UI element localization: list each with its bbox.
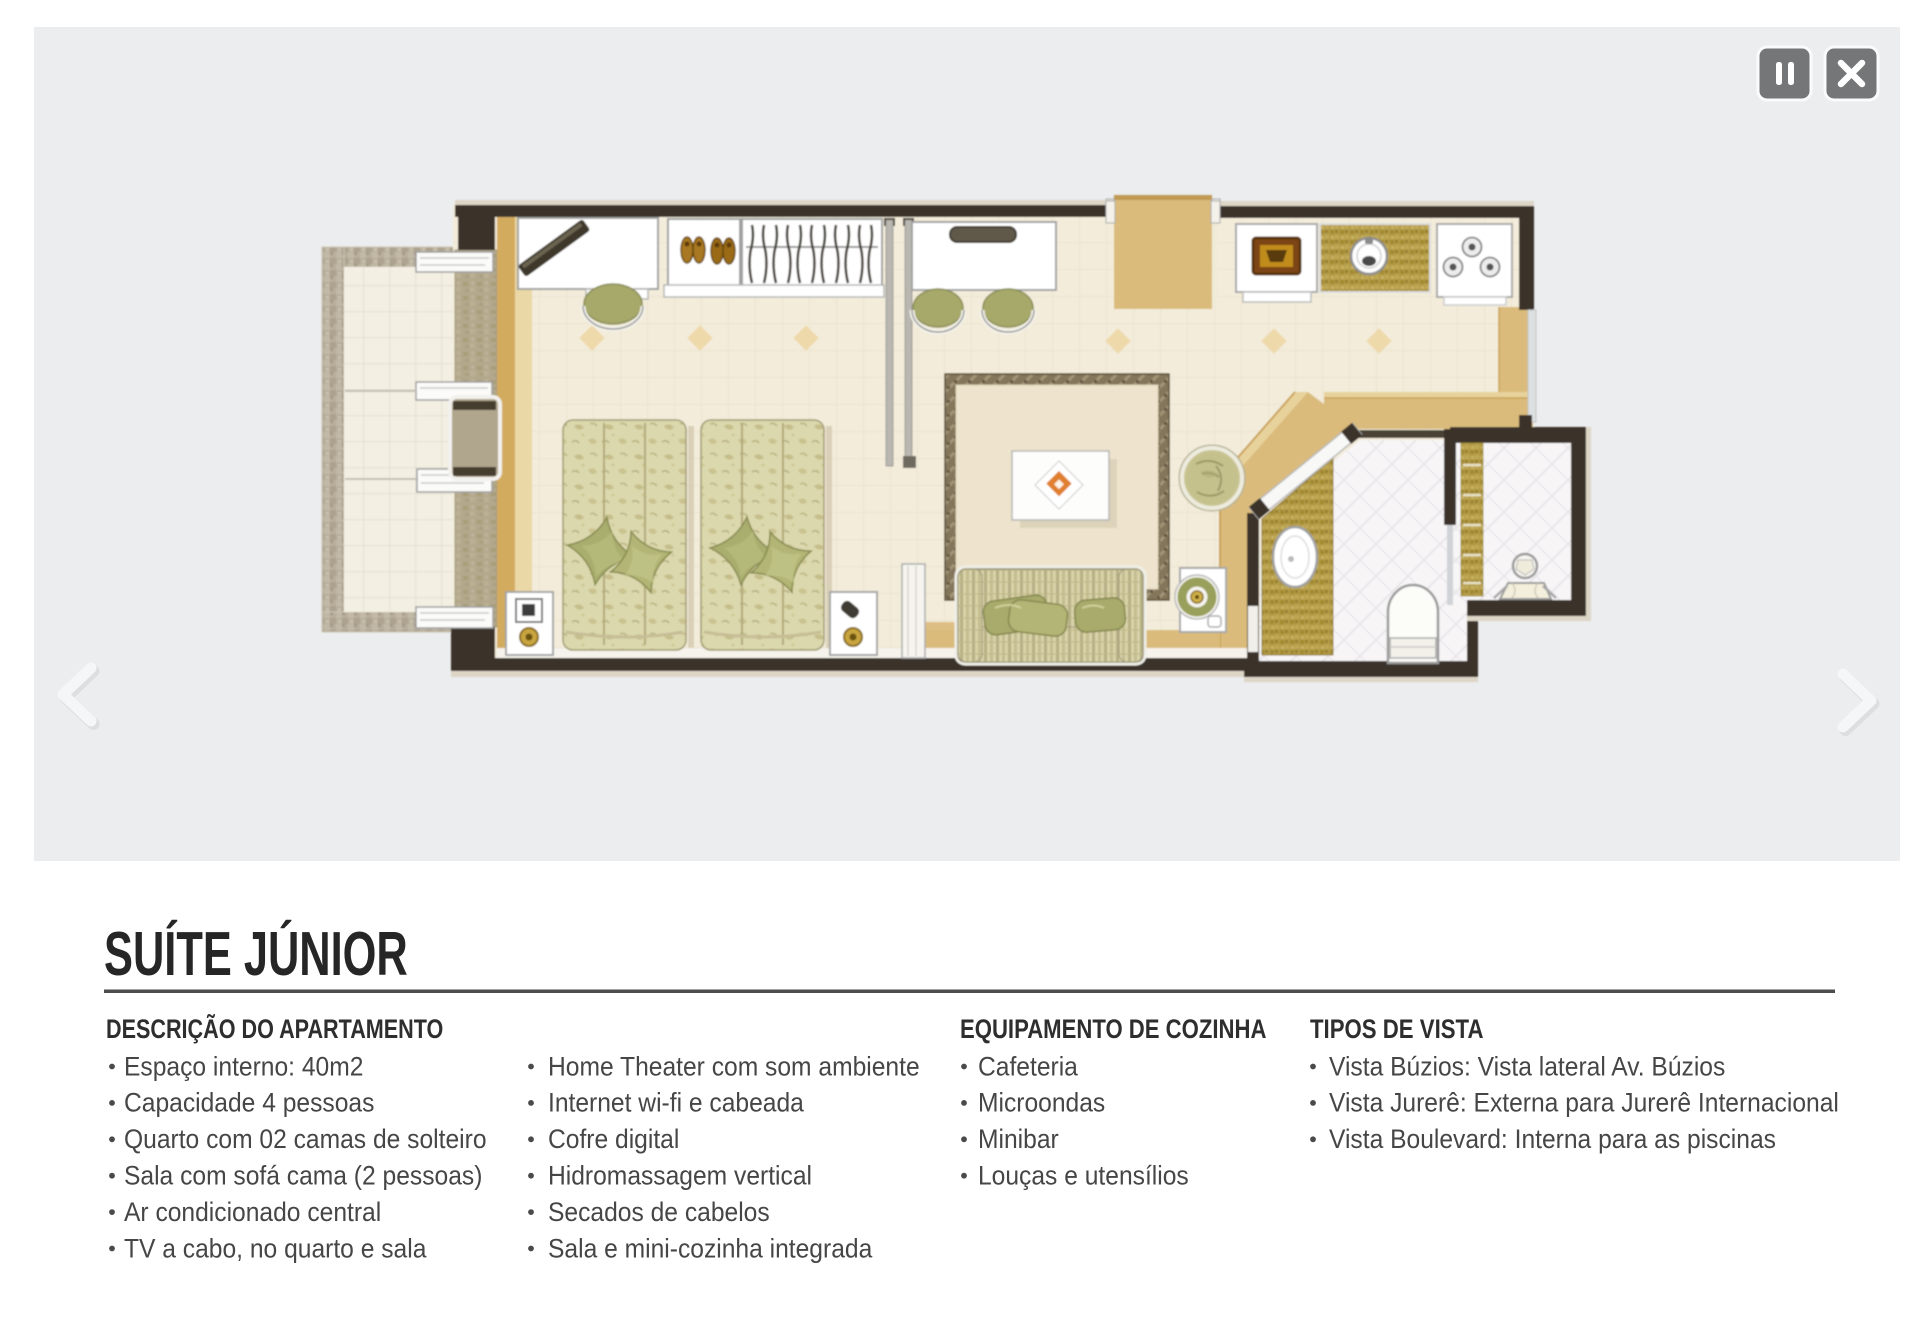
svg-text:SUÍTE JÚNIOR: SUÍTE JÚNIOR (104, 919, 408, 989)
svg-text:Secados de cabelos: Secados de cabelos (548, 1198, 770, 1227)
svg-text:Espaço interno: 40m2: Espaço interno: 40m2 (124, 1052, 363, 1081)
svg-text:DESCRIÇÃO DO APARTAMENTO: DESCRIÇÃO DO APARTAMENTO (106, 1014, 443, 1045)
svg-text:Ar condicionado central: Ar condicionado central (124, 1198, 381, 1227)
svg-text:Vista Jurerê: Externa para Jur: Vista Jurerê: Externa para Jurerê Intern… (1329, 1089, 1839, 1118)
svg-text:Louças e utensílios: Louças e utensílios (978, 1162, 1189, 1191)
svg-text:Hidromassagem vertical: Hidromassagem vertical (548, 1162, 812, 1191)
svg-text:Sala e mini-cozinha integrada: Sala e mini-cozinha integrada (548, 1234, 873, 1263)
svg-text:Quarto com 02 camas de solteir: Quarto com 02 camas de solteiro (124, 1125, 487, 1154)
svg-text:Home Theater com som ambiente: Home Theater com som ambiente (548, 1052, 920, 1081)
svg-text:Cafeteria: Cafeteria (978, 1052, 1078, 1081)
svg-text:Vista Búzios: Vista lateral Av: Vista Búzios: Vista lateral Av. Búzios (1329, 1052, 1725, 1081)
svg-text:Sala com sofá cama (2 pessoas): Sala com sofá cama (2 pessoas) (124, 1162, 482, 1191)
svg-text:Capacidade 4 pessoas: Capacidade 4 pessoas (124, 1089, 374, 1118)
svg-text:Internet wi-fi e cabeada: Internet wi-fi e cabeada (548, 1089, 804, 1118)
svg-text:TIPOS DE VISTA: TIPOS DE VISTA (1310, 1015, 1484, 1044)
svg-text:Microondas: Microondas (978, 1089, 1105, 1118)
svg-text:Vista Boulevard: Interna para: Vista Boulevard: Interna para as piscina… (1329, 1125, 1776, 1154)
svg-text:Cofre digital: Cofre digital (548, 1125, 679, 1154)
svg-text:TV a cabo, no quarto e sala: TV a cabo, no quarto e sala (124, 1234, 427, 1263)
svg-text:Minibar: Minibar (978, 1125, 1059, 1154)
svg-text:EQUIPAMENTO DE COZINHA: EQUIPAMENTO DE COZINHA (960, 1015, 1266, 1044)
